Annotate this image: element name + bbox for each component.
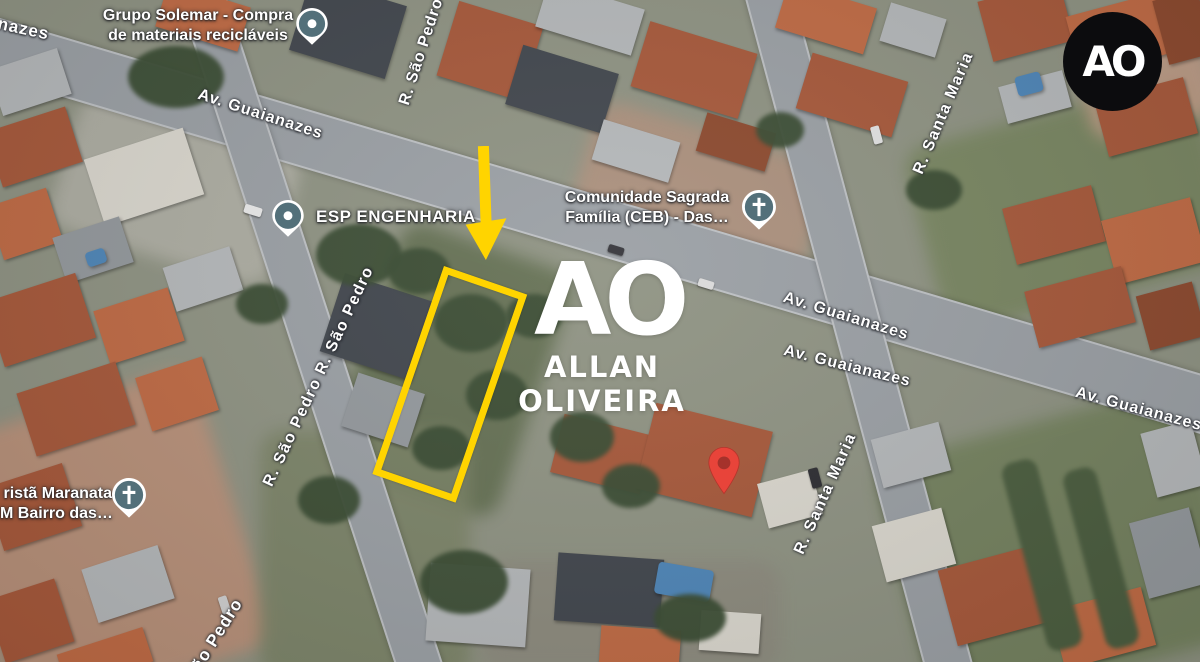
tree-canopy [236, 284, 288, 324]
poi-label-comunidade-sagrada: Comunidade Sagrada Família (CEB) - Das… [548, 188, 746, 228]
building-roof [1136, 281, 1200, 350]
building-roof [505, 45, 619, 134]
tree-canopy [654, 594, 726, 642]
red-location-pin-icon [703, 446, 745, 501]
building-roof [93, 287, 184, 364]
tree-canopy [420, 550, 508, 614]
poi-label-line: Comunidade Sagrada [548, 188, 746, 208]
watermark-ao-monogram: AO [534, 250, 682, 350]
tree-canopy [298, 476, 360, 524]
church-poi-pin-icon [742, 190, 776, 236]
poi-label-line: Grupo Solemar - Compra [96, 6, 300, 26]
poi-label-line: ristã Maranata [0, 484, 112, 504]
property-pointer-arrow-icon [456, 146, 514, 271]
tree-canopy [602, 464, 660, 508]
tree-canopy [550, 412, 614, 462]
building-roof [0, 273, 96, 367]
poi-label-line: Família (CEB) - Das… [548, 208, 746, 228]
recycling-poi-pin-icon [296, 8, 328, 51]
poi-label-line: M Bairro das… [0, 504, 112, 524]
watermark-brand-name: ALLAN OLIVEIRA [462, 350, 742, 418]
building-roof [554, 552, 664, 627]
tree-canopy [906, 170, 962, 210]
tree-canopy [756, 112, 804, 148]
poi-label-line: de materiais recicláveis [96, 26, 300, 46]
building-roof [879, 2, 946, 57]
building-roof [977, 0, 1074, 62]
business-poi-pin-icon [272, 200, 304, 243]
poi-label-grupo-solemar: Grupo Solemar - Compra de materiais reci… [96, 6, 300, 46]
corner-logo-monogram: AO [1082, 37, 1142, 86]
poi-label-crista-maranata: ristã Maranata M Bairro das… [0, 484, 112, 524]
satellite-map-image: nazes Av. Guaianazes R. São Pedro R. São… [0, 0, 1200, 662]
church-poi-pin-icon [112, 478, 146, 524]
building-roof [535, 0, 645, 56]
poi-label-esp-engenharia: ESP ENGENHARIA [316, 206, 476, 227]
corner-ao-logo: AO [1063, 12, 1162, 111]
building-roof [631, 21, 758, 119]
